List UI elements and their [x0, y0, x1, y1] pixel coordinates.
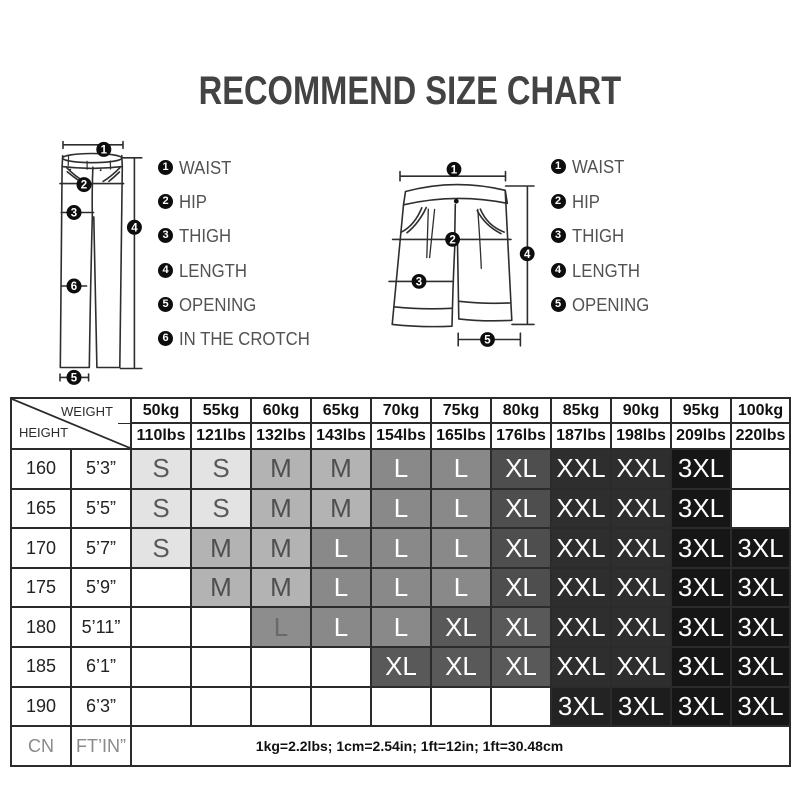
svg-text:4: 4: [524, 249, 531, 261]
svg-text:2: 2: [449, 234, 455, 246]
svg-text:5: 5: [71, 372, 78, 384]
svg-text:1: 1: [101, 144, 108, 156]
svg-text:3: 3: [71, 208, 77, 220]
svg-text:1: 1: [451, 164, 458, 176]
svg-text:5: 5: [484, 335, 491, 347]
svg-text:4: 4: [131, 222, 138, 234]
svg-text:2: 2: [81, 180, 87, 192]
svg-text:3: 3: [416, 276, 422, 288]
svg-text:6: 6: [71, 281, 77, 293]
